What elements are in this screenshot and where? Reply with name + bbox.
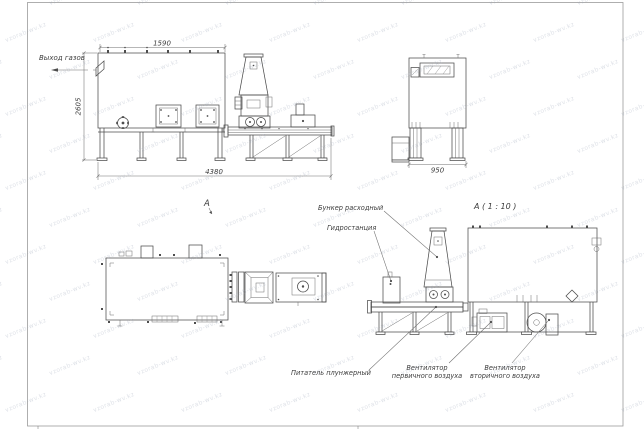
view-a-marker: A: [203, 199, 212, 214]
end-view: 950: [392, 55, 468, 175]
hatch-strips: [152, 316, 217, 322]
hydrostation-label: Гидростанция: [327, 224, 376, 232]
dim-front-top-width: 1590: [99, 40, 227, 53]
primary-fan-label-line1: Вентилятор: [406, 364, 447, 372]
gas-flue: [96, 61, 104, 76]
view-a-support: [467, 302, 597, 335]
view-a-body: [468, 228, 597, 302]
hydrostation-unit: [383, 272, 400, 303]
dim-front-height: 2605: [75, 51, 98, 161]
furnace-legs: [97, 128, 225, 161]
view-a: [368, 226, 602, 336]
plan-body: [106, 258, 228, 320]
feeder-label: Питатель плунжерный: [291, 369, 372, 377]
primary-air-fan: [472, 309, 507, 332]
dim-text-2605: 2605: [75, 97, 83, 115]
end-view-side-unit: [392, 137, 409, 162]
plan-duct: [245, 272, 273, 303]
arrow-left-icon: [51, 68, 58, 72]
plan-view: [101, 245, 326, 326]
view-a-bottom-studs: [517, 295, 537, 303]
dim-text-4380: 4380: [205, 168, 223, 176]
hopper-label: Бункер расходный: [318, 204, 384, 212]
dim-text-950: 950: [431, 167, 445, 175]
dim-text-1590: 1590: [153, 40, 171, 48]
mount-brackets: [151, 128, 225, 132]
drawing-canvas: 1590 2605 4380 Выход газов A: [0, 0, 644, 430]
gas-outlet-callout: Выход газов: [39, 54, 88, 72]
dim-front-overall: 4380: [97, 138, 333, 180]
plan-bolts: [101, 254, 222, 324]
door-panel: [196, 105, 219, 127]
view-a-scale-label: A ( 1 : 10 ): [473, 202, 516, 211]
dim-end-width: 950: [408, 161, 468, 175]
engineering-drawing: 1590 2605 4380 Выход газов A: [0, 0, 644, 430]
plan-brackets: [118, 320, 225, 326]
hydrostation-side: [291, 104, 315, 127]
furnace-body: [98, 53, 225, 128]
callouts: Бункер расходный Гидростанция Питатель п…: [291, 204, 550, 380]
side-bracket: [592, 238, 601, 252]
gas-outlet-label: Выход газов: [39, 54, 85, 62]
drain-fitting: [116, 116, 129, 129]
view-a-letter: A: [203, 199, 210, 209]
hopper-unit: [424, 228, 453, 302]
end-view-body: [409, 58, 466, 128]
end-view-legs: [408, 128, 465, 161]
conveyor-truss: [246, 135, 327, 161]
plan-feeder: [276, 273, 326, 306]
secondary-fan-label-line2: вторичного воздуха: [470, 372, 540, 380]
feed-hopper: [235, 54, 272, 128]
inspection-port: [566, 290, 578, 302]
anchor-bolts: [107, 50, 219, 53]
top-hatch: [420, 63, 454, 77]
bolt-studs: [412, 122, 458, 128]
sheet-frame: [28, 3, 624, 430]
view-a-conveyor: [368, 301, 469, 314]
front-view: 1590 2605 4380 Выход газов A: [39, 40, 334, 215]
view-a-truss: [376, 312, 454, 335]
primary-fan-label-line2: первичного воздуха: [392, 372, 462, 380]
door-panel: [156, 105, 181, 127]
conveyor: [224, 125, 334, 137]
secondary-fan-label-line1: Вентилятор: [484, 364, 525, 372]
plan-flange: [230, 272, 245, 302]
